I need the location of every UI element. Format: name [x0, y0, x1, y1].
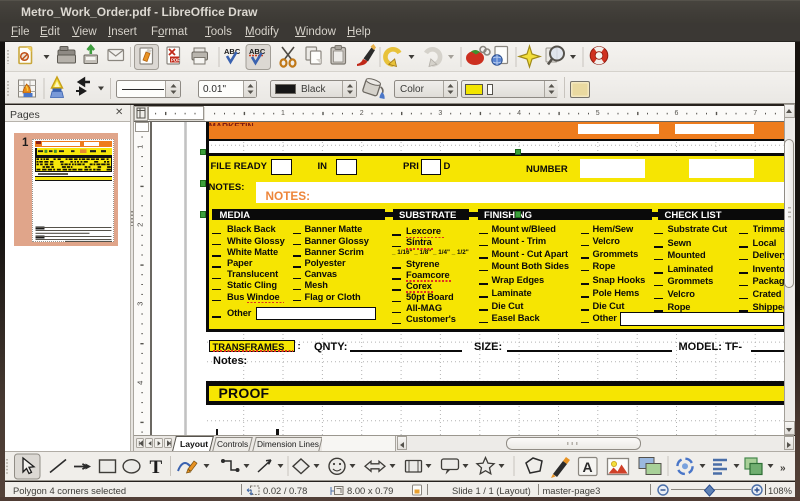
svg-text:T: T: [150, 457, 163, 478]
svg-text:»: »: [780, 463, 786, 474]
svg-text:A: A: [583, 459, 593, 475]
